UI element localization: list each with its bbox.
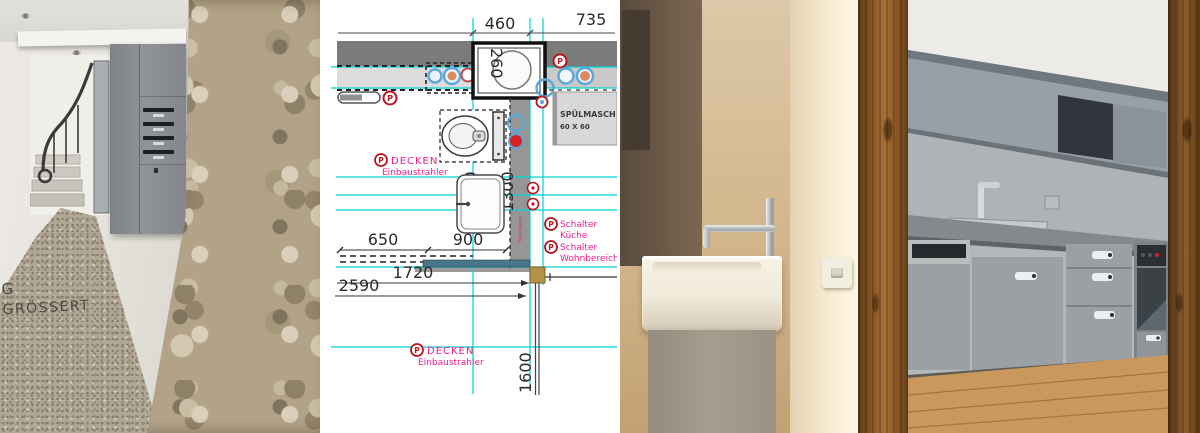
svg-text:P: P [378,156,384,165]
switch-toggle [831,268,843,278]
mail-slot [143,108,174,112]
mail-slot-label [153,114,164,117]
mail-slot-label [153,128,164,131]
base-cabinet-door [972,257,1063,372]
dim-260: 260 [487,48,506,79]
timber-post [858,0,908,433]
dim-650-900: 650 900 [337,230,509,253]
basin-faucet [703,225,775,232]
basin-faucet-spout [703,228,710,248]
svg-text:DECKEN: DECKEN [391,156,438,167]
dim-top: 460 735 [338,10,615,36]
svg-text:P: P [548,243,554,252]
caption-line-1: G [1,278,89,298]
island-lines [536,283,540,395]
socket-marker-dot [531,186,534,189]
dim-735: 735 [576,10,607,29]
washbasin-symbol [456,175,504,233]
kitchen-interior [908,0,1168,433]
svg-text:1720: 1720 [393,263,434,282]
drawer-stack [1066,244,1132,364]
wall-outlet [1045,196,1059,209]
spotlight-symbol [429,70,442,83]
wall-line-right [545,273,617,281]
spotlight-symbol [559,69,574,84]
svg-text:Wohnbereich: Wohnbereich [560,254,617,264]
socket-marker-dot [531,202,534,205]
wall-socket-vertical-label: Steckdose [518,216,524,242]
floor-plan-drawing: 460 735 P [323,0,617,433]
floor-plan: 460 735 P [323,0,617,433]
spotlight-dot [448,72,457,81]
dishwasher-box: SPÜLMASCH 60 X 60 [549,90,617,145]
mail-slot [143,122,174,126]
counter-outline [340,256,530,267]
dishwasher-label-2: 60 X 60 [560,123,590,131]
toilet-symbol [440,110,506,162]
open-shelf [1058,95,1113,160]
kitchen-photo [620,0,1200,433]
back-door [94,61,109,213]
cabinet-door [1113,104,1166,168]
socket-marker-dot [540,100,544,104]
timber-post-plan [530,267,545,283]
spotlight-dot [580,71,590,81]
washbasin [642,256,782,332]
annotation-switch-living: P Schalter Wohnbereich [545,241,617,264]
cabinet-seam [140,96,186,97]
mail-slot-label [153,142,164,145]
dishwasher [908,240,970,370]
svg-text:Schalter: Schalter [560,220,597,230]
annotation-switch-kitchen: P Schalter Küche [545,218,597,241]
dim-650: 650 [368,230,399,249]
keyhole-icon [154,168,158,173]
washbasin-cabinet [648,330,776,433]
dim-460: 460 [485,14,516,33]
mail-slot-label [153,156,164,159]
staircase [30,55,115,215]
svg-text:P: P [387,94,393,103]
svg-text:P: P [414,346,420,355]
dishwasher-label-1: SPÜLMASCH [560,109,616,119]
svg-text:Einbaustrahler: Einbaustrahler [418,358,484,368]
photo-caption: G GRÖSSERT [1,278,90,318]
svg-text:P: P [557,57,563,66]
svg-text:Küche: Küche [560,231,588,241]
oven [1134,242,1168,372]
dim-900: 900 [453,230,484,249]
radiator-symbol [338,92,380,103]
white-column [790,0,858,433]
mailbox-cabinet [110,44,186,234]
svg-text:2590: 2590 [339,276,380,295]
dim-1600: 1600 [516,352,535,393]
timber-post-foreground [1168,0,1200,433]
svg-text:DECKEN: DECKEN [427,346,474,357]
cabinet-seam [139,44,140,234]
cabinet-seam [140,164,186,165]
mail-slot [143,150,174,154]
architecture-triptych: G GRÖSSERT [0,0,1200,433]
svg-text:P: P [548,220,554,229]
svg-text:Einbaustrahler: Einbaustrahler [382,168,448,178]
svg-text:Schalter: Schalter [560,243,597,253]
annotation-ceiling-spots-1: P DECKEN Einbaustrahler [375,154,448,178]
washbasin-rim [652,262,762,272]
hallway-photo: G GRÖSSERT [0,0,320,433]
washer-symbol: 260 [473,43,554,108]
annotation-ceiling-spots-2: P DECKEN Einbaustrahler [411,344,484,368]
light-switch [822,258,852,288]
p-marker-icon: P [554,55,567,68]
mail-slot [143,136,174,140]
ceiling-light-icon [21,13,30,19]
wall-recess [622,10,650,150]
spotlight-symbol-red [509,134,523,148]
stair-steps [30,155,84,206]
dark-wall [620,0,702,266]
p-marker-icon: P [384,92,397,105]
